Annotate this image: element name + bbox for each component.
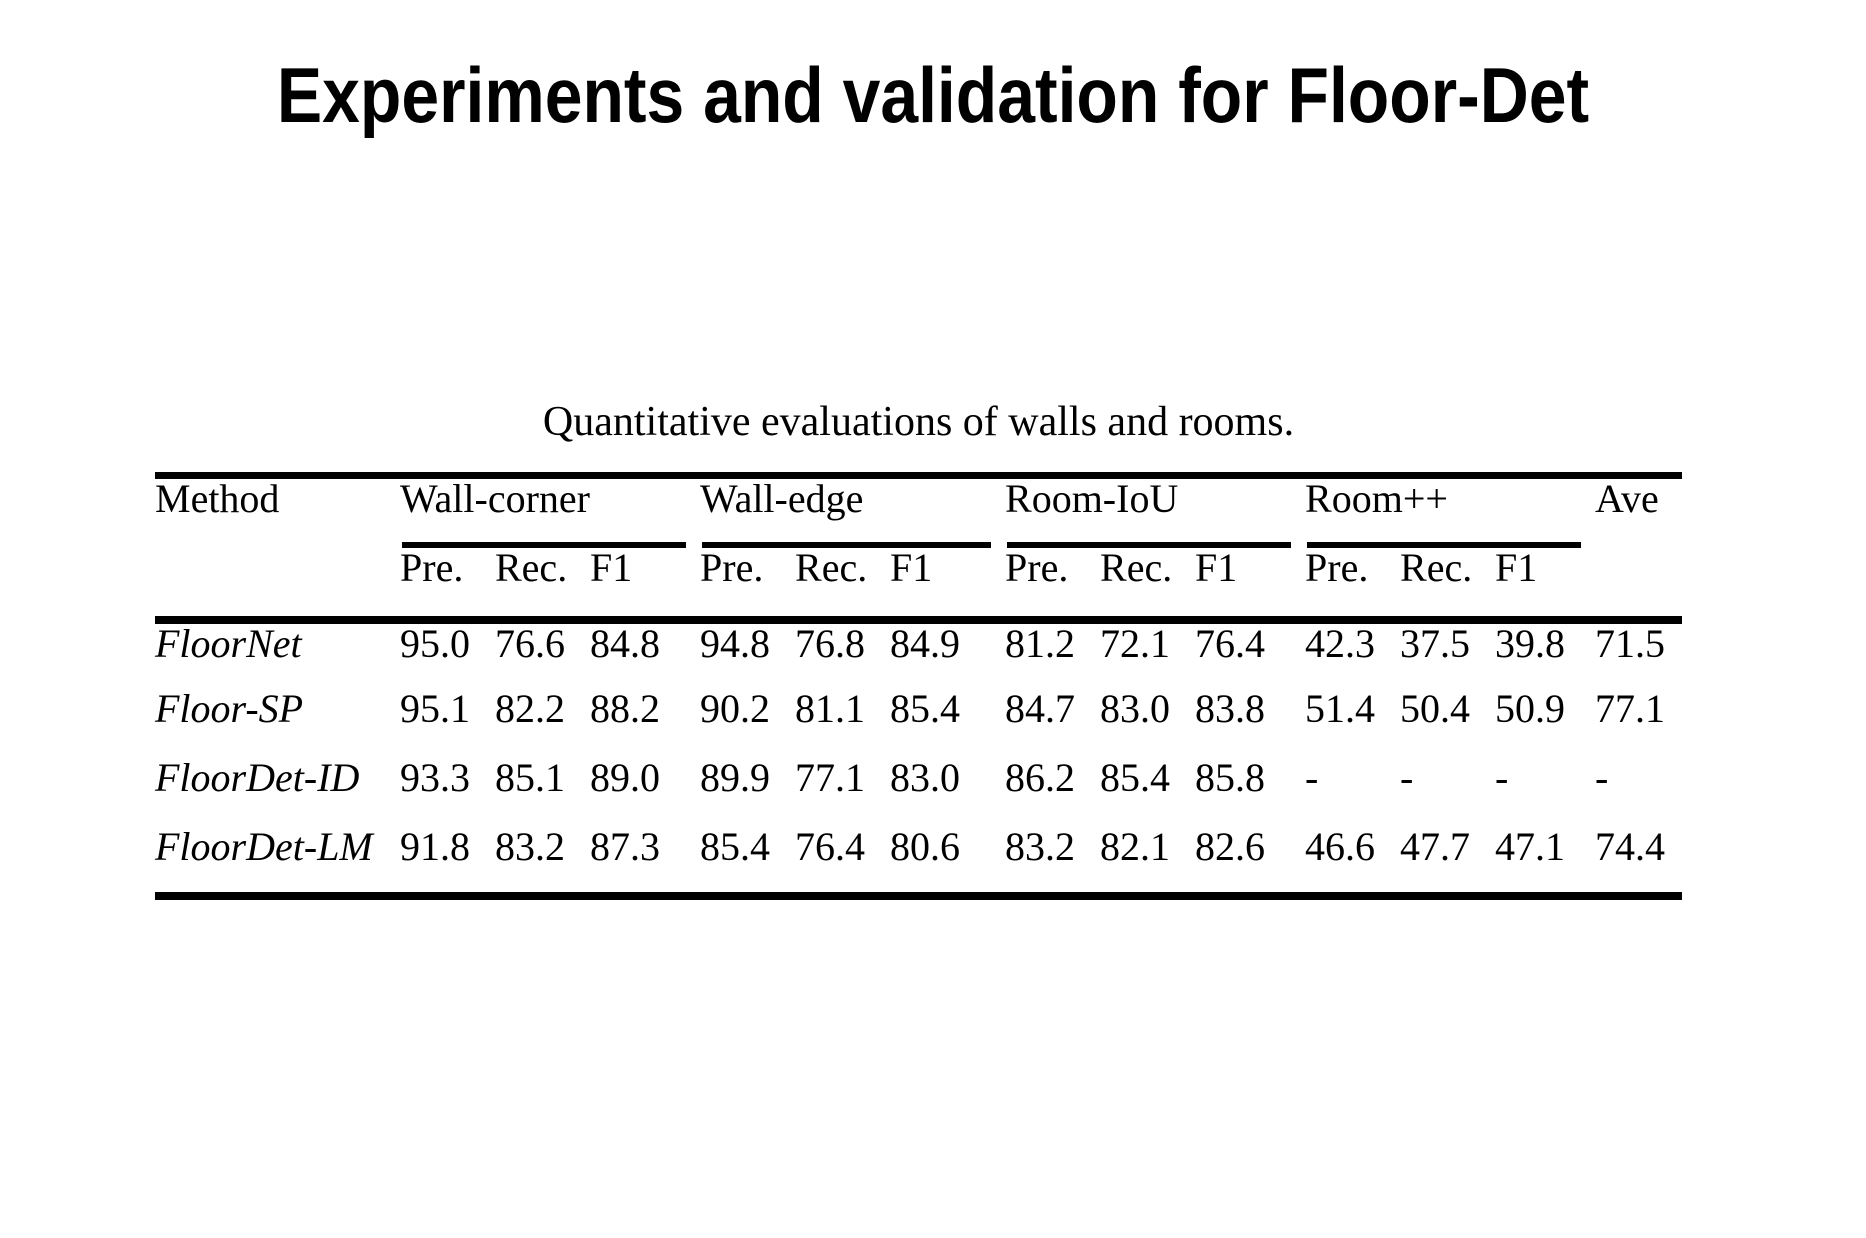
value-cell: 50.4 bbox=[1400, 689, 1495, 758]
value-cell: 95.0 bbox=[400, 620, 495, 689]
value-cell: 82.1 bbox=[1100, 827, 1195, 896]
value-cell: 71.5 bbox=[1595, 620, 1682, 689]
value-cell: 76.4 bbox=[795, 827, 890, 896]
value-cell: 81.2 bbox=[1005, 620, 1100, 689]
method-name-cell: FloorDet-LM bbox=[155, 827, 400, 896]
value-cell: 83.8 bbox=[1195, 689, 1305, 758]
subheader-ri-pre: Pre. bbox=[1005, 548, 1100, 620]
subheader-we-rec: Rec. bbox=[795, 548, 890, 620]
value-cell: 94.8 bbox=[700, 620, 795, 689]
group-header-wall-edge: Wall-edge bbox=[700, 476, 1005, 548]
value-cell: - bbox=[1595, 758, 1682, 827]
value-cell: 37.5 bbox=[1400, 620, 1495, 689]
value-cell: 82.2 bbox=[495, 689, 590, 758]
value-cell: 39.8 bbox=[1495, 620, 1595, 689]
value-cell: 84.8 bbox=[590, 620, 700, 689]
value-cell: 83.0 bbox=[1100, 689, 1195, 758]
value-cell: 80.6 bbox=[890, 827, 1005, 896]
value-cell: 76.6 bbox=[495, 620, 590, 689]
value-cell: 82.6 bbox=[1195, 827, 1305, 896]
table-row: FloorDet-LM 91.8 83.2 87.3 85.4 76.4 80.… bbox=[155, 827, 1682, 896]
ave-header-cell: Ave bbox=[1595, 476, 1682, 620]
group-header-room-plus-plus: Room++ bbox=[1305, 476, 1595, 548]
subheader-rp-pre: Pre. bbox=[1305, 548, 1400, 620]
group-header-row: Method Wall-corner Wall-edge Room-IoU Ro… bbox=[155, 476, 1682, 548]
value-cell: 87.3 bbox=[590, 827, 700, 896]
value-cell: - bbox=[1495, 758, 1595, 827]
value-cell: 85.8 bbox=[1195, 758, 1305, 827]
value-cell: 81.1 bbox=[795, 689, 890, 758]
value-cell: 83.2 bbox=[1005, 827, 1100, 896]
subheader-ri-rec: Rec. bbox=[1100, 548, 1195, 620]
value-cell: 83.2 bbox=[495, 827, 590, 896]
value-cell: 47.7 bbox=[1400, 827, 1495, 896]
subheader-wc-f1: F1 bbox=[590, 548, 700, 620]
value-cell: 85.4 bbox=[1100, 758, 1195, 827]
table-row: Floor-SP 95.1 82.2 88.2 90.2 81.1 85.4 8… bbox=[155, 689, 1682, 758]
method-name-cell: Floor-SP bbox=[155, 689, 400, 758]
table-head: Method Wall-corner Wall-edge Room-IoU Ro… bbox=[155, 476, 1682, 620]
value-cell: 76.4 bbox=[1195, 620, 1305, 689]
value-cell: 76.8 bbox=[795, 620, 890, 689]
subheader-we-f1: F1 bbox=[890, 548, 1005, 620]
slide: Experiments and validation for Floor-Det… bbox=[0, 0, 1866, 1238]
value-cell: 91.8 bbox=[400, 827, 495, 896]
table-row: FloorDet-ID 93.3 85.1 89.0 89.9 77.1 83.… bbox=[155, 758, 1682, 827]
value-cell: 86.2 bbox=[1005, 758, 1100, 827]
value-cell: 95.1 bbox=[400, 689, 495, 758]
value-cell: 77.1 bbox=[795, 758, 890, 827]
value-cell: 93.3 bbox=[400, 758, 495, 827]
value-cell: 42.3 bbox=[1305, 620, 1400, 689]
table-row: FloorNet 95.0 76.6 84.8 94.8 76.8 84.9 8… bbox=[155, 620, 1682, 689]
method-header-cell: Method bbox=[155, 476, 400, 620]
table-caption: Quantitative evaluations of walls and ro… bbox=[155, 401, 1682, 443]
value-cell: 50.9 bbox=[1495, 689, 1595, 758]
value-cell: 77.1 bbox=[1595, 689, 1682, 758]
subheader-rp-rec: Rec. bbox=[1400, 548, 1495, 620]
slide-title: Experiments and validation for Floor-Det bbox=[121, 56, 1744, 134]
value-cell: 84.9 bbox=[890, 620, 1005, 689]
method-name-cell: FloorNet bbox=[155, 620, 400, 689]
value-cell: 89.9 bbox=[700, 758, 795, 827]
value-cell: 85.4 bbox=[700, 827, 795, 896]
value-cell: 47.1 bbox=[1495, 827, 1595, 896]
method-name-cell: FloorDet-ID bbox=[155, 758, 400, 827]
results-table: Method Wall-corner Wall-edge Room-IoU Ro… bbox=[155, 472, 1682, 900]
subheader-wc-pre: Pre. bbox=[400, 548, 495, 620]
value-cell: 83.0 bbox=[890, 758, 1005, 827]
value-cell: - bbox=[1305, 758, 1400, 827]
subheader-rp-f1: F1 bbox=[1495, 548, 1595, 620]
value-cell: 85.1 bbox=[495, 758, 590, 827]
value-cell: 89.0 bbox=[590, 758, 700, 827]
value-cell: 74.4 bbox=[1595, 827, 1682, 896]
group-header-room-iou: Room-IoU bbox=[1005, 476, 1305, 548]
value-cell: 84.7 bbox=[1005, 689, 1100, 758]
value-cell: 90.2 bbox=[700, 689, 795, 758]
value-cell: 72.1 bbox=[1100, 620, 1195, 689]
subheader-we-pre: Pre. bbox=[700, 548, 795, 620]
value-cell: - bbox=[1400, 758, 1495, 827]
value-cell: 46.6 bbox=[1305, 827, 1400, 896]
table-body: FloorNet 95.0 76.6 84.8 94.8 76.8 84.9 8… bbox=[155, 620, 1682, 896]
subheader-wc-rec: Rec. bbox=[495, 548, 590, 620]
group-header-wall-corner: Wall-corner bbox=[400, 476, 700, 548]
value-cell: 88.2 bbox=[590, 689, 700, 758]
value-cell: 85.4 bbox=[890, 689, 1005, 758]
value-cell: 51.4 bbox=[1305, 689, 1400, 758]
subheader-ri-f1: F1 bbox=[1195, 548, 1305, 620]
